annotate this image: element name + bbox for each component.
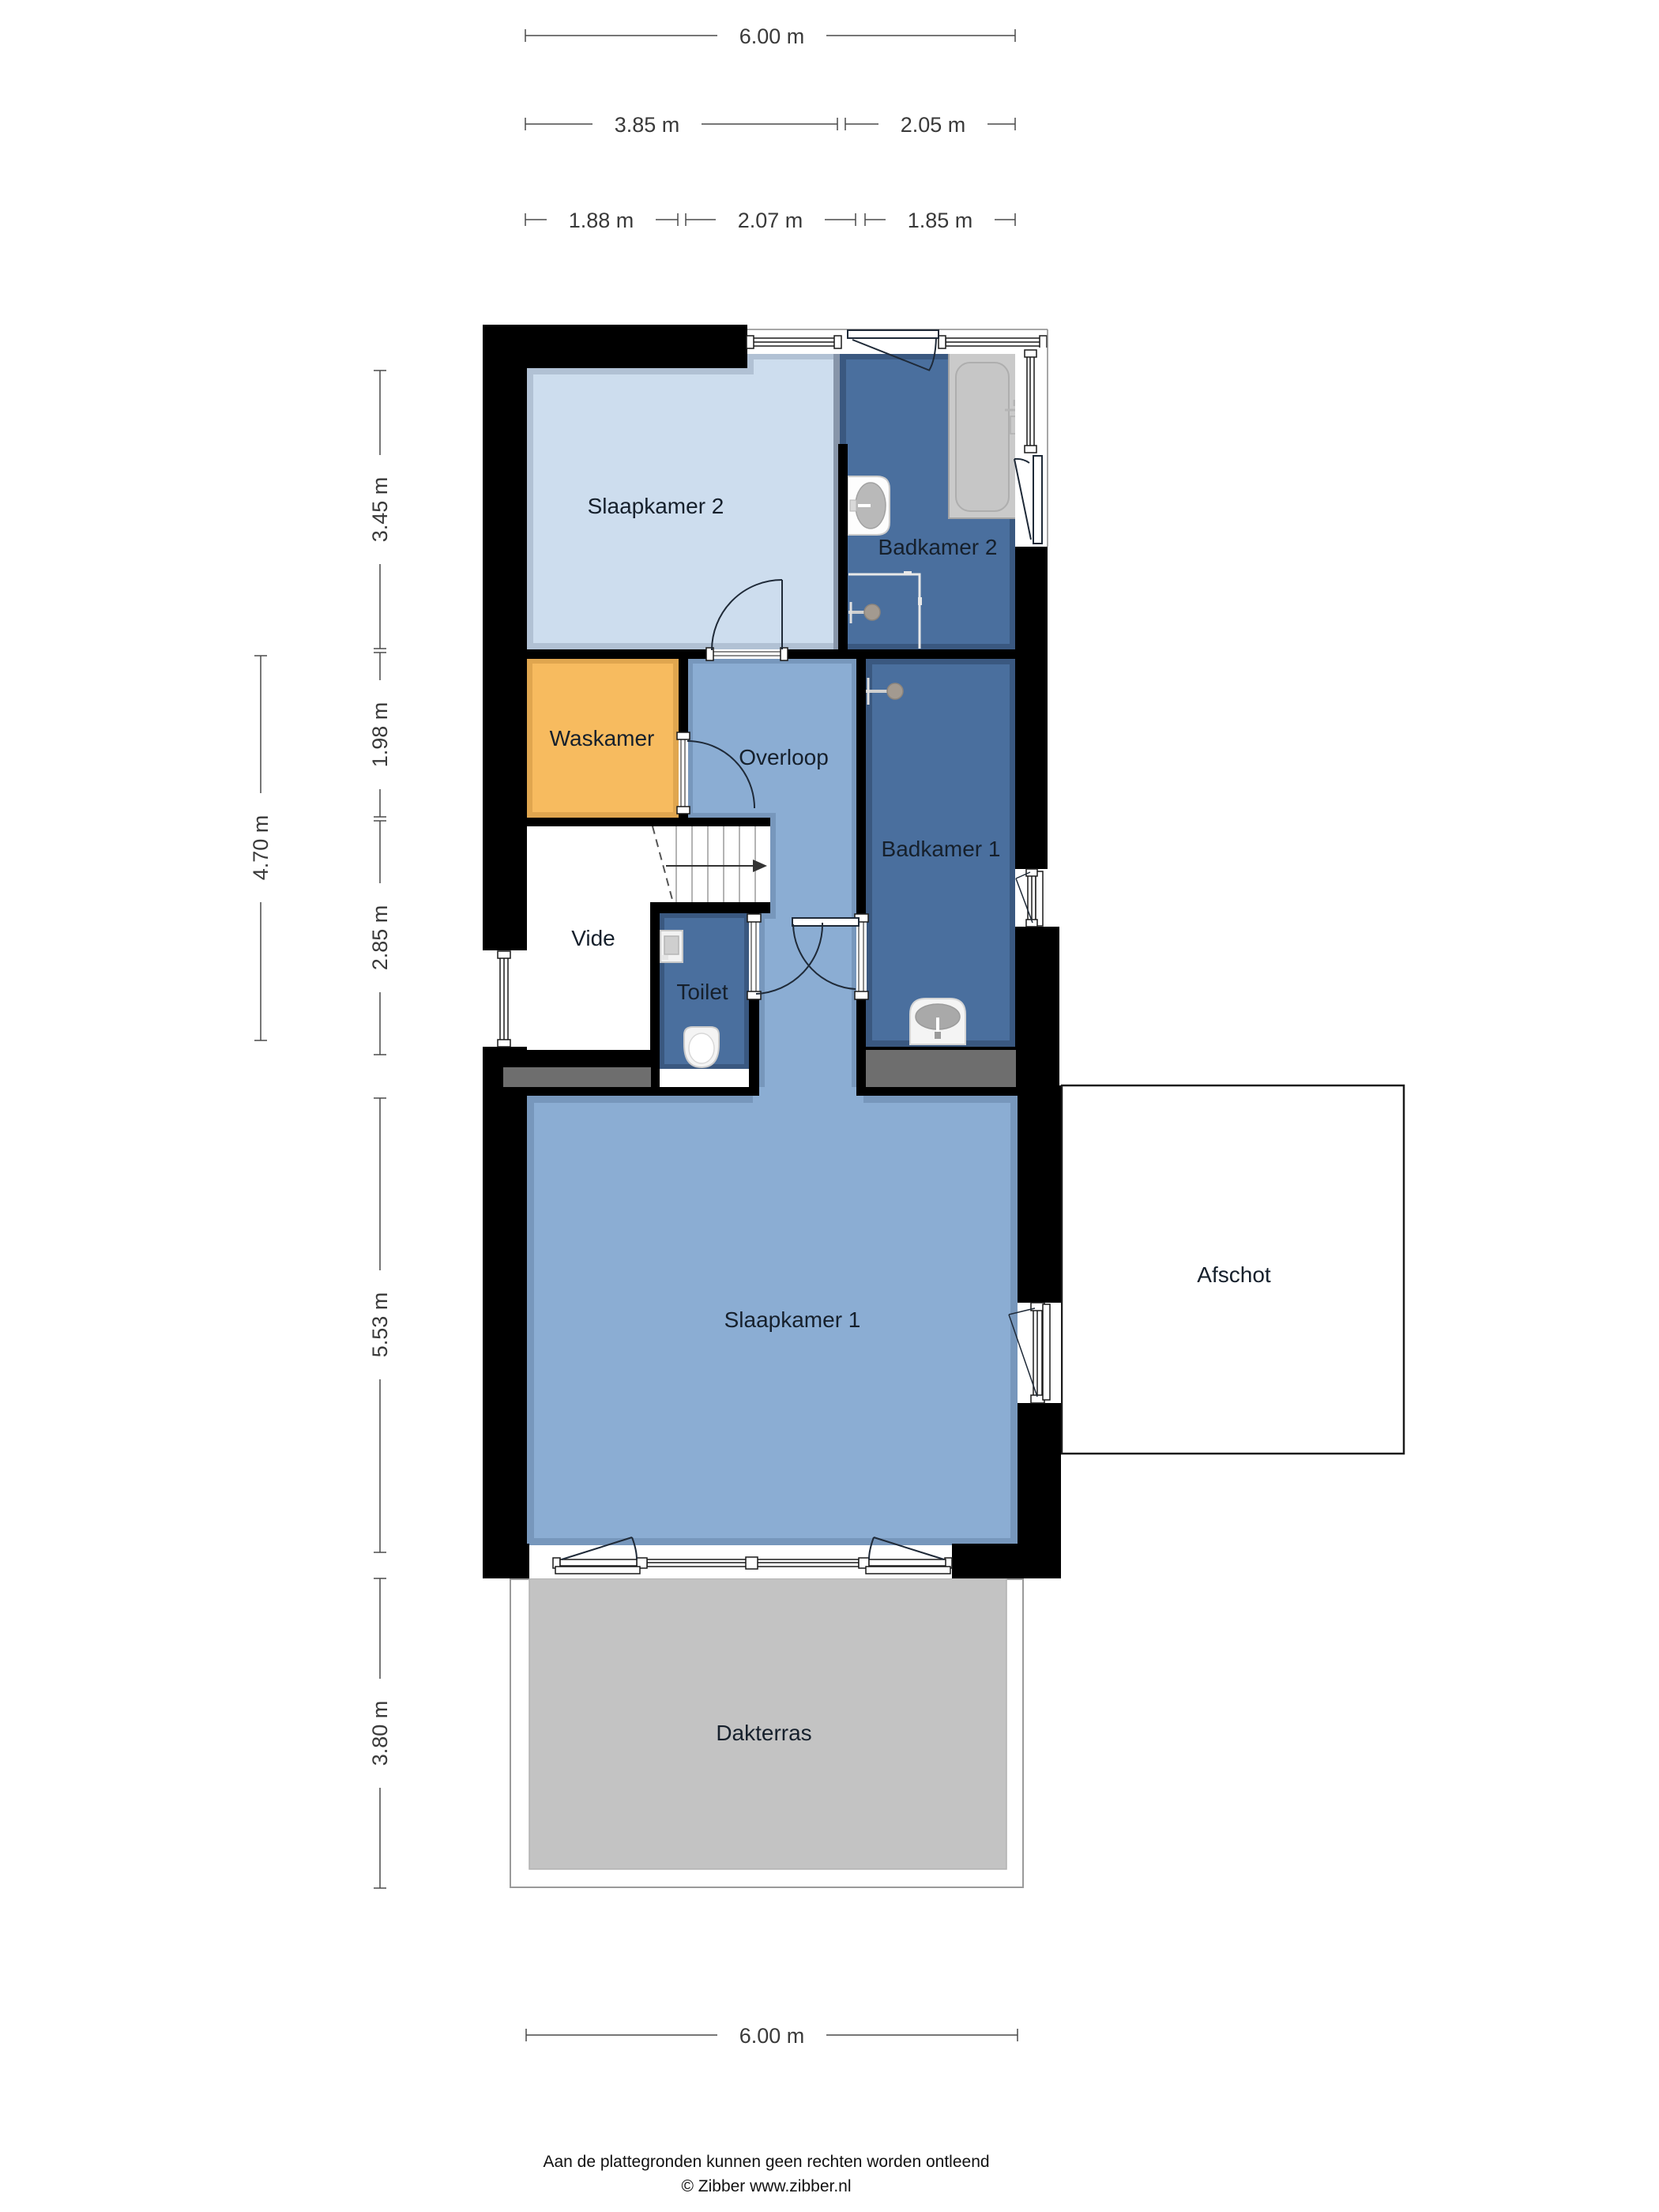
svg-text:6.00 m: 6.00 m bbox=[739, 2024, 805, 2048]
svg-text:2.85 m: 2.85 m bbox=[368, 905, 392, 971]
svg-text:3.85 m: 3.85 m bbox=[615, 113, 680, 137]
svg-text:© Zibber www.zibber.nl: © Zibber www.zibber.nl bbox=[681, 2177, 851, 2195]
svg-text:1.85 m: 1.85 m bbox=[908, 209, 973, 232]
svg-text:3.80 m: 3.80 m bbox=[368, 1701, 392, 1766]
svg-text:Badkamer 1: Badkamer 1 bbox=[882, 837, 1001, 861]
svg-text:Slaapkamer 1: Slaapkamer 1 bbox=[724, 1307, 861, 1332]
svg-text:5.53 m: 5.53 m bbox=[368, 1292, 392, 1358]
svg-text:2.07 m: 2.07 m bbox=[738, 209, 803, 232]
svg-text:1.88 m: 1.88 m bbox=[569, 209, 634, 232]
svg-text:4.70 m: 4.70 m bbox=[249, 815, 273, 881]
svg-text:Waskamer: Waskamer bbox=[550, 726, 655, 750]
svg-text:Toilet: Toilet bbox=[676, 980, 728, 1004]
svg-text:6.00 m: 6.00 m bbox=[739, 24, 805, 48]
svg-text:Overloop: Overloop bbox=[739, 745, 829, 769]
svg-text:Badkamer 2: Badkamer 2 bbox=[878, 535, 998, 559]
svg-text:1.98 m: 1.98 m bbox=[368, 702, 392, 768]
svg-text:3.45 m: 3.45 m bbox=[368, 477, 392, 543]
svg-text:2.05 m: 2.05 m bbox=[901, 113, 966, 137]
svg-text:Afschot: Afschot bbox=[1197, 1262, 1271, 1287]
svg-text:Slaapkamer 2: Slaapkamer 2 bbox=[588, 494, 724, 518]
svg-text:Aan de plattegronden kunnen ge: Aan de plattegronden kunnen geen rechten… bbox=[543, 2153, 989, 2171]
svg-text:Vide: Vide bbox=[571, 926, 615, 950]
svg-text:Dakterras: Dakterras bbox=[716, 1721, 811, 1745]
